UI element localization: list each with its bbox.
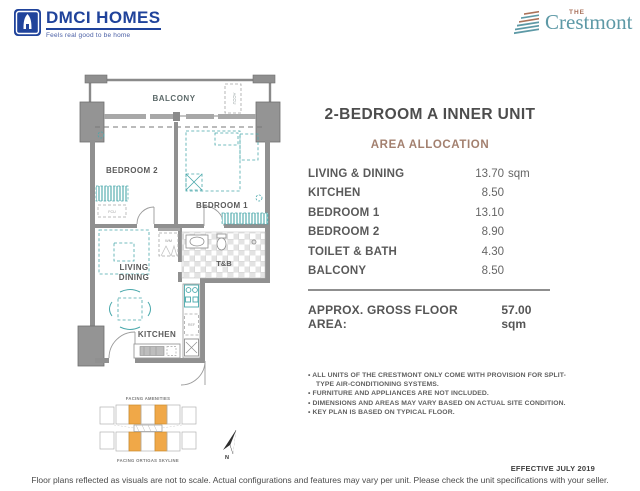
toilet-icon — [217, 238, 226, 250]
row-unit: sqm — [508, 168, 548, 180]
row-label: TOILET & BATH — [308, 246, 446, 258]
tb-label: T&B — [216, 259, 232, 268]
row-label: BALCONY — [308, 265, 446, 277]
row-label: LIVING & DINING — [308, 168, 446, 180]
crestmont-logo: THE Crestmont — [512, 8, 633, 38]
note-item: KEY PLAN IS BASED ON TYPICAL FLOOR. — [308, 408, 574, 417]
table-row: TOILET & BATH 4.30 — [308, 242, 552, 262]
bedroom2-wardrobe — [96, 186, 128, 201]
crestmont-layers-icon — [512, 8, 542, 38]
crestmont-the: THE — [569, 9, 585, 16]
note-item: FURNITURE AND APPLIANCES ARE NOT INCLUDE… — [308, 389, 574, 398]
toilet-bath-room: T&B — [182, 232, 265, 278]
gross-value: 57.00 sqm — [501, 303, 552, 331]
gross-floor-area: APPROX. GROSS FLOOR AREA: 57.00 sqm — [308, 303, 552, 331]
unit-info-panel: 2-BEDROOM A INNER UNIT AREA ALLOCATION L… — [308, 100, 552, 417]
table-row: BEDROOM 2 8.90 — [308, 223, 552, 243]
kitchen-area: REF KITCHEN — [134, 284, 200, 358]
balcony-area: ACCU BALCONY — [85, 75, 275, 113]
bedroom1-label: BEDROOM 1 — [196, 201, 248, 210]
north-compass-icon: N — [223, 430, 236, 461]
row-value: 13.10 — [446, 207, 504, 219]
living-label: LIVING — [119, 263, 148, 272]
column-right — [256, 102, 280, 142]
table-row: LIVING & DINING 13.70sqm — [308, 164, 552, 184]
row-label: KITCHEN — [308, 187, 446, 199]
facing-skyline-label: FACING ORTIGAS SKYLINE — [117, 458, 179, 463]
dmci-tagline: Feels real good to be home — [46, 32, 161, 39]
ref-label: REF — [188, 323, 196, 327]
wm-label: WM — [165, 238, 172, 243]
bedroom2-area: BEDROOM 2 FCU — [96, 132, 158, 217]
key-plan: FACING AMENITIES FACING ORTIGAS SKYLINE … — [86, 392, 242, 472]
floor-plan-drawing: ACCU BALCONY — [74, 74, 286, 396]
sink-icon — [190, 237, 204, 246]
dining-label: DINING — [119, 273, 149, 282]
note-item: ALL UNITS OF THE CRESTMONT ONLY COME WIT… — [308, 371, 574, 389]
column-left — [80, 102, 104, 142]
row-value: 8.50 — [446, 265, 504, 277]
gross-label: APPROX. GROSS FLOOR AREA: — [308, 303, 475, 331]
area-allocation-table: LIVING & DINING 13.70sqm KITCHEN 8.50 BE… — [308, 164, 552, 281]
table-row: BALCONY 8.50 — [308, 262, 552, 282]
row-label: BEDROOM 1 — [308, 207, 446, 219]
bedroom1-wardrobe — [222, 213, 268, 224]
row-value: 4.30 — [446, 246, 504, 258]
dmci-logo: DMCI HOMES Feels real good to be home — [14, 9, 161, 39]
divider-line — [308, 289, 550, 291]
dmci-brand-name: DMCI HOMES — [46, 9, 161, 30]
key-plan-building — [100, 405, 196, 451]
north-label: N — [225, 455, 229, 461]
fcu-label: FCU — [108, 210, 116, 214]
table-row: KITCHEN 8.50 — [308, 184, 552, 204]
row-value: 8.90 — [446, 226, 504, 238]
row-value: 8.50 — [446, 187, 504, 199]
footer-disclaimer: Floor plans reflected as visuals are not… — [0, 475, 640, 485]
dmci-homes-icon — [14, 9, 41, 36]
unit-title: 2-BEDROOM A INNER UNIT — [308, 106, 552, 124]
accu-label: ACCU — [232, 93, 237, 105]
bedroom1-area: BEDROOM 1 — [186, 131, 268, 224]
washing-machine-area: WM — [159, 233, 178, 256]
note-item: DIMENSIONS AND AREAS MAY VARY BASED ON A… — [308, 399, 574, 408]
floor-plan-page: { "header": { "dmci_brand": "DMCI HOMES"… — [0, 0, 640, 491]
table-row: BEDROOM 1 13.10 — [308, 203, 552, 223]
facing-amenities-label: FACING AMENITIES — [126, 396, 170, 401]
balcony-sliding-doors — [95, 112, 265, 127]
area-allocation-heading: AREA ALLOCATION — [308, 139, 552, 151]
kitchen-label: KITCHEN — [138, 330, 176, 339]
effective-date: EFFECTIVE JULY 2019 — [511, 464, 595, 473]
crestmont-name: Crestmont — [545, 8, 633, 37]
balcony-label: BALCONY — [152, 94, 195, 103]
row-label: BEDROOM 2 — [308, 226, 446, 238]
living-dining-area: LIVING DINING — [99, 230, 151, 330]
row-value: 13.70 — [446, 168, 504, 180]
bedroom2-label: BEDROOM 2 — [106, 166, 158, 175]
notes-list: ALL UNITS OF THE CRESTMONT ONLY COME WIT… — [308, 371, 574, 417]
